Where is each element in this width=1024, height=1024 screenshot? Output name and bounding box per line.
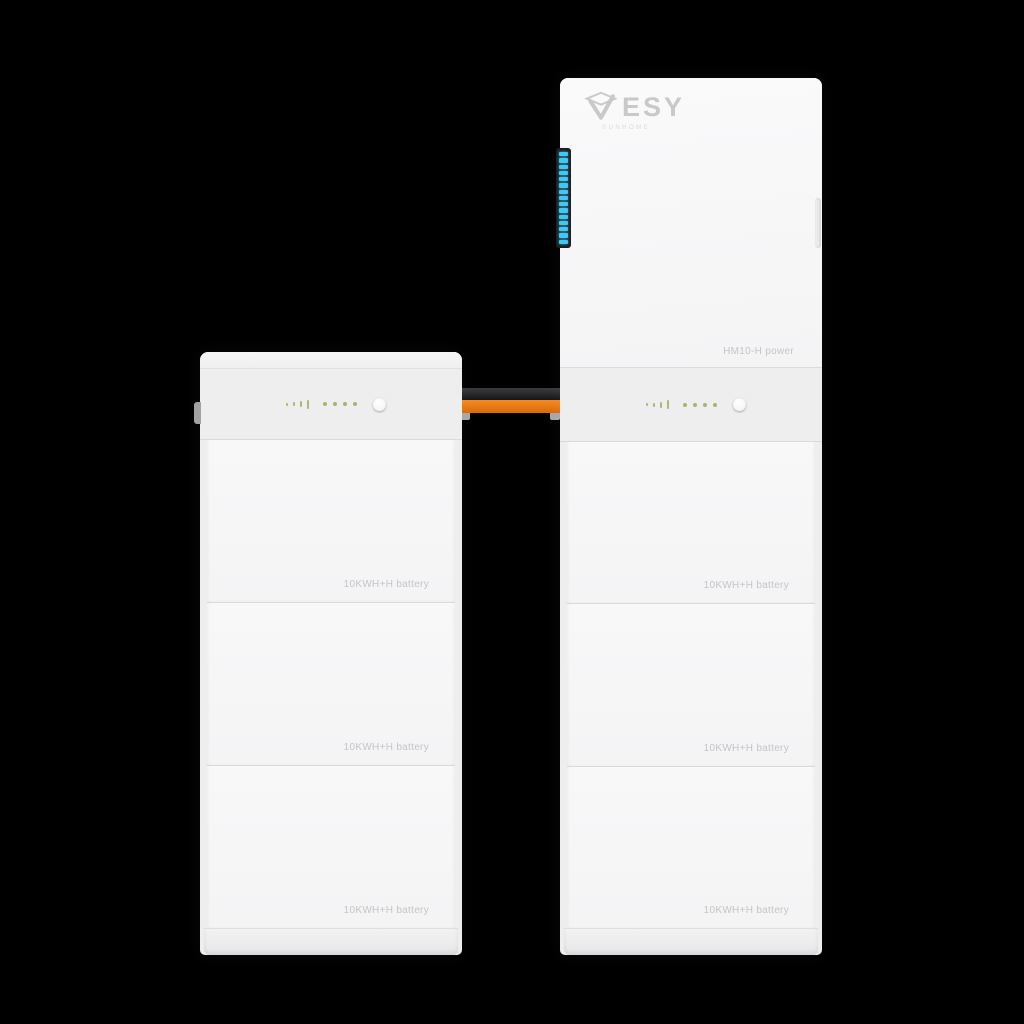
status-led (333, 402, 337, 406)
status-button[interactable] (733, 398, 746, 411)
battery-module-label: 10KWH+H battery (704, 580, 789, 591)
level-bar (667, 400, 669, 409)
battery-module: 10KWH+H battery (207, 766, 455, 928)
product-stage: 10KWH+H battery 10KWH+H battery 10KWH+H … (0, 0, 1024, 1024)
battery-module: 10KWH+H battery (567, 442, 815, 604)
status-led (703, 403, 707, 407)
status-led (683, 403, 687, 407)
led-segment (559, 183, 568, 187)
level-bar (646, 403, 648, 406)
led-segment (559, 171, 568, 175)
led-segment (559, 233, 568, 237)
battery-module-label: 10KWH+H battery (704, 743, 789, 754)
tower-top-cap (200, 352, 462, 369)
battery-module: 10KWH+H battery (567, 767, 815, 928)
battery-module-label: 10KWH+H battery (344, 579, 429, 590)
led-segment (559, 165, 568, 169)
status-led (343, 402, 347, 406)
brand-logo: ESY (582, 88, 685, 126)
battery-module: 10KWH+H battery (567, 604, 815, 766)
power-module: ESY SUNHOME HM10-H power (560, 78, 822, 368)
level-bar (660, 402, 662, 408)
tower-base (204, 928, 458, 955)
status-led (713, 403, 717, 407)
led-status-strip (556, 148, 571, 248)
status-button[interactable] (373, 398, 386, 411)
led-segment (559, 221, 568, 225)
battery-module-stack: 10KWH+H battery 10KWH+H battery 10KWH+H … (200, 439, 462, 928)
level-bar (293, 402, 295, 406)
battery-tower-left: 10KWH+H battery 10KWH+H battery 10KWH+H … (200, 352, 462, 955)
led-segment (559, 196, 568, 200)
control-panel (200, 369, 462, 439)
battery-module-stack: 10KWH+H battery 10KWH+H battery 10KWH+H … (560, 441, 822, 928)
led-segment (559, 190, 568, 194)
level-bar (307, 400, 309, 409)
side-handle (815, 198, 821, 248)
brand-tagline: SUNHOME (602, 125, 650, 131)
battery-module: 10KWH+H battery (207, 603, 455, 766)
status-led (693, 403, 697, 407)
level-bar (653, 403, 655, 407)
side-connector (194, 402, 201, 424)
led-segment (559, 152, 568, 156)
status-leds (323, 402, 357, 406)
led-segment (559, 215, 568, 219)
power-module-label: HM10-H power (723, 346, 794, 357)
status-led (353, 402, 357, 406)
led-segment (559, 202, 568, 206)
level-bars (286, 399, 309, 409)
control-panel (560, 368, 822, 441)
tower-base (564, 928, 818, 955)
status-leds (683, 403, 717, 407)
indicator-row (286, 398, 386, 411)
battery-module-label: 10KWH+H battery (344, 742, 429, 753)
led-segment (559, 208, 568, 212)
status-led (323, 402, 327, 406)
power-tower-right: ESY SUNHOME HM10-H power 10KWH+H battery… (560, 78, 822, 955)
led-segment (559, 227, 568, 231)
led-segment (559, 158, 568, 162)
battery-module-label: 10KWH+H battery (704, 905, 789, 916)
brand-logo-text: ESY (622, 92, 685, 123)
level-bars (646, 400, 669, 410)
level-bar (286, 403, 288, 406)
led-segment (559, 177, 568, 181)
led-segment (559, 240, 568, 244)
battery-module: 10KWH+H battery (207, 440, 455, 603)
esy-check-mark-icon (582, 88, 620, 126)
battery-module-label: 10KWH+H battery (344, 905, 429, 916)
level-bar (300, 401, 302, 407)
indicator-row (646, 398, 746, 411)
